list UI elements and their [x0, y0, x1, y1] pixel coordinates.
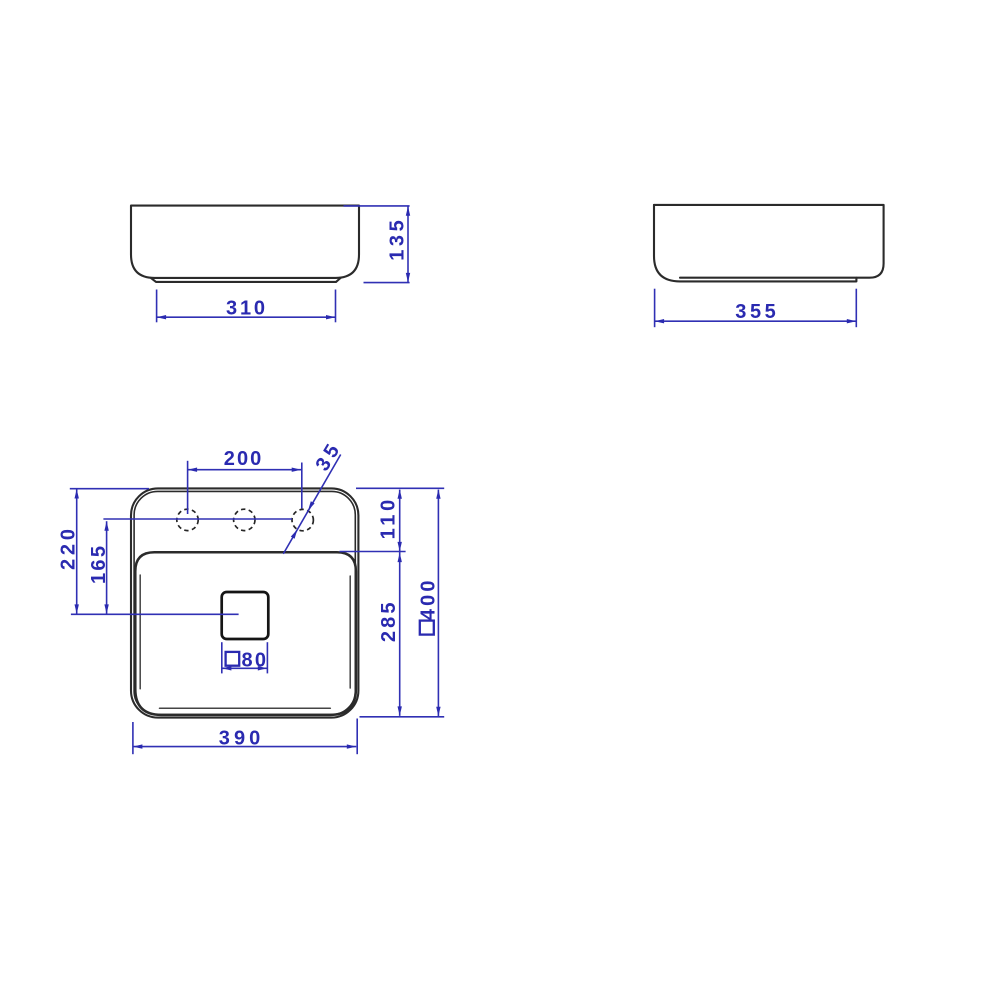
svg-text:200: 200	[224, 448, 262, 470]
svg-text:355: 355	[735, 301, 776, 323]
svg-text:165: 165	[88, 546, 110, 584]
svg-text:285: 285	[378, 603, 400, 643]
svg-text:310: 310	[226, 298, 265, 320]
svg-text:400: 400	[418, 581, 440, 621]
svg-text:390: 390	[219, 728, 261, 750]
svg-text:135: 135	[387, 220, 409, 261]
svg-text:110: 110	[377, 500, 399, 540]
svg-text:220: 220	[57, 529, 79, 570]
